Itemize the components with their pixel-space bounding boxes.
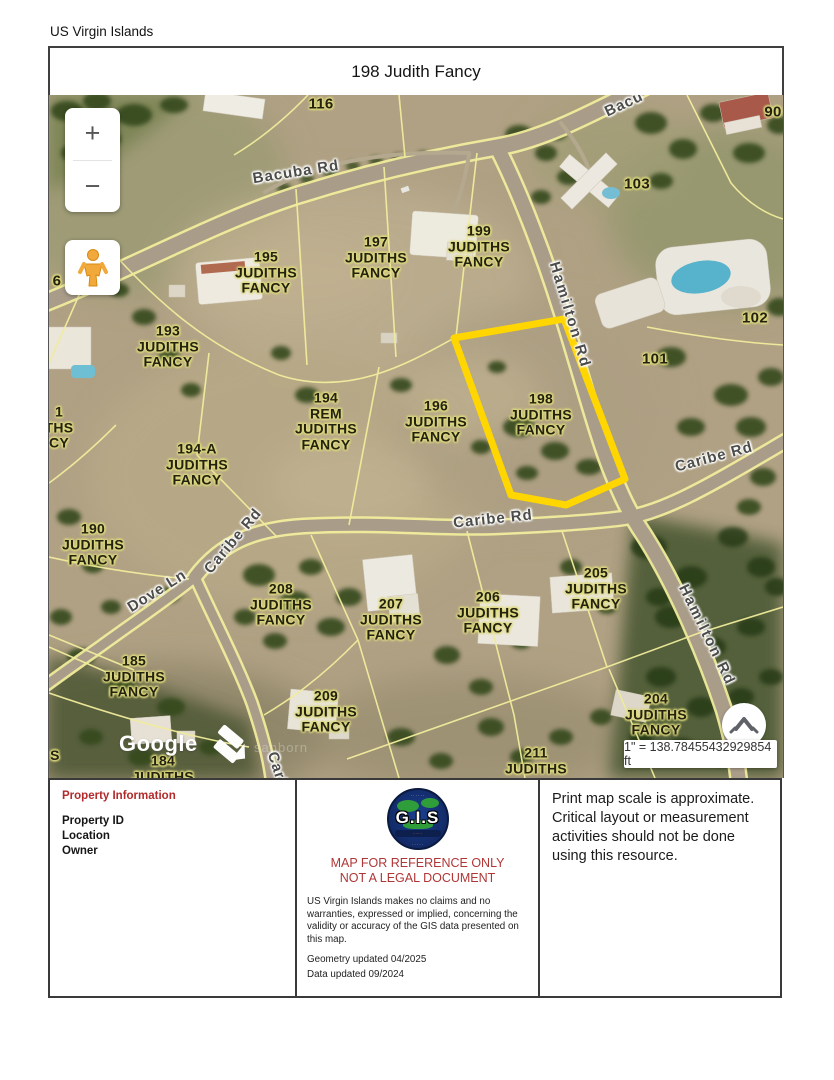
property-id-label: Property ID	[62, 814, 283, 829]
location-label: Location	[62, 829, 283, 844]
property-information-heading: Property Information	[62, 790, 283, 802]
map-canvas[interactable]: 116 90 103 195 JUDITHS FANCY 197 JUDITHS…	[48, 95, 784, 778]
reference-warning-line2: NOT A LEGAL DOCUMENT	[307, 871, 528, 886]
print-scale-note: Print map scale is approximate. Critical…	[552, 790, 768, 866]
zoom-out-button[interactable]: −	[65, 161, 120, 213]
geometry-updated-text: Geometry updated 04/2025	[307, 954, 528, 967]
scale-note-panel: Print map scale is approximate. Critical…	[540, 780, 780, 996]
satellite-imagery	[49, 95, 783, 778]
sanborn-icon	[206, 722, 252, 768]
map-footer: Property Information Property ID Locatio…	[48, 778, 782, 998]
data-updated-text: Data updated 09/2024	[307, 969, 528, 982]
zoom-in-button[interactable]: +	[65, 108, 120, 160]
gis-logo-top-text: · · · · · ·	[389, 793, 447, 798]
property-information-panel: Property Information Property ID Locatio…	[50, 780, 297, 996]
gis-logo-bottom-text: · · · · ·	[389, 842, 447, 847]
gis-disclaimer-text: US Virgin Islands makes no claims and no…	[307, 896, 528, 946]
owner-label: Owner	[62, 844, 283, 859]
reference-warning-line1: MAP FOR REFERENCE ONLY	[307, 856, 528, 871]
region-header: US Virgin Islands	[50, 24, 153, 39]
gis-logo: · · · · · · G.I.S ······· · · · · ·	[387, 788, 449, 850]
google-watermark: Google	[119, 731, 198, 757]
page-title: 198 Judith Fancy	[351, 62, 480, 82]
gis-logo-text: G.I.S	[389, 808, 447, 828]
street-view-pegman-button[interactable]	[65, 240, 120, 295]
disclaimer-panel: · · · · · · G.I.S ······· · · · · · MAP …	[297, 780, 540, 996]
sanborn-text: sanborn	[254, 740, 308, 755]
map-title-box: 198 Judith Fancy	[48, 46, 784, 97]
zoom-control: + −	[65, 108, 120, 212]
map-scale-label: 1" = 138.78455432929854 ft	[624, 740, 777, 768]
pegman-icon	[76, 248, 110, 288]
print-preview-page: US Virgin Islands 198 Judith Fancy	[0, 0, 834, 1080]
sanborn-logo: sanborn	[206, 722, 316, 770]
gis-logo-band-text: ·······	[389, 831, 447, 836]
